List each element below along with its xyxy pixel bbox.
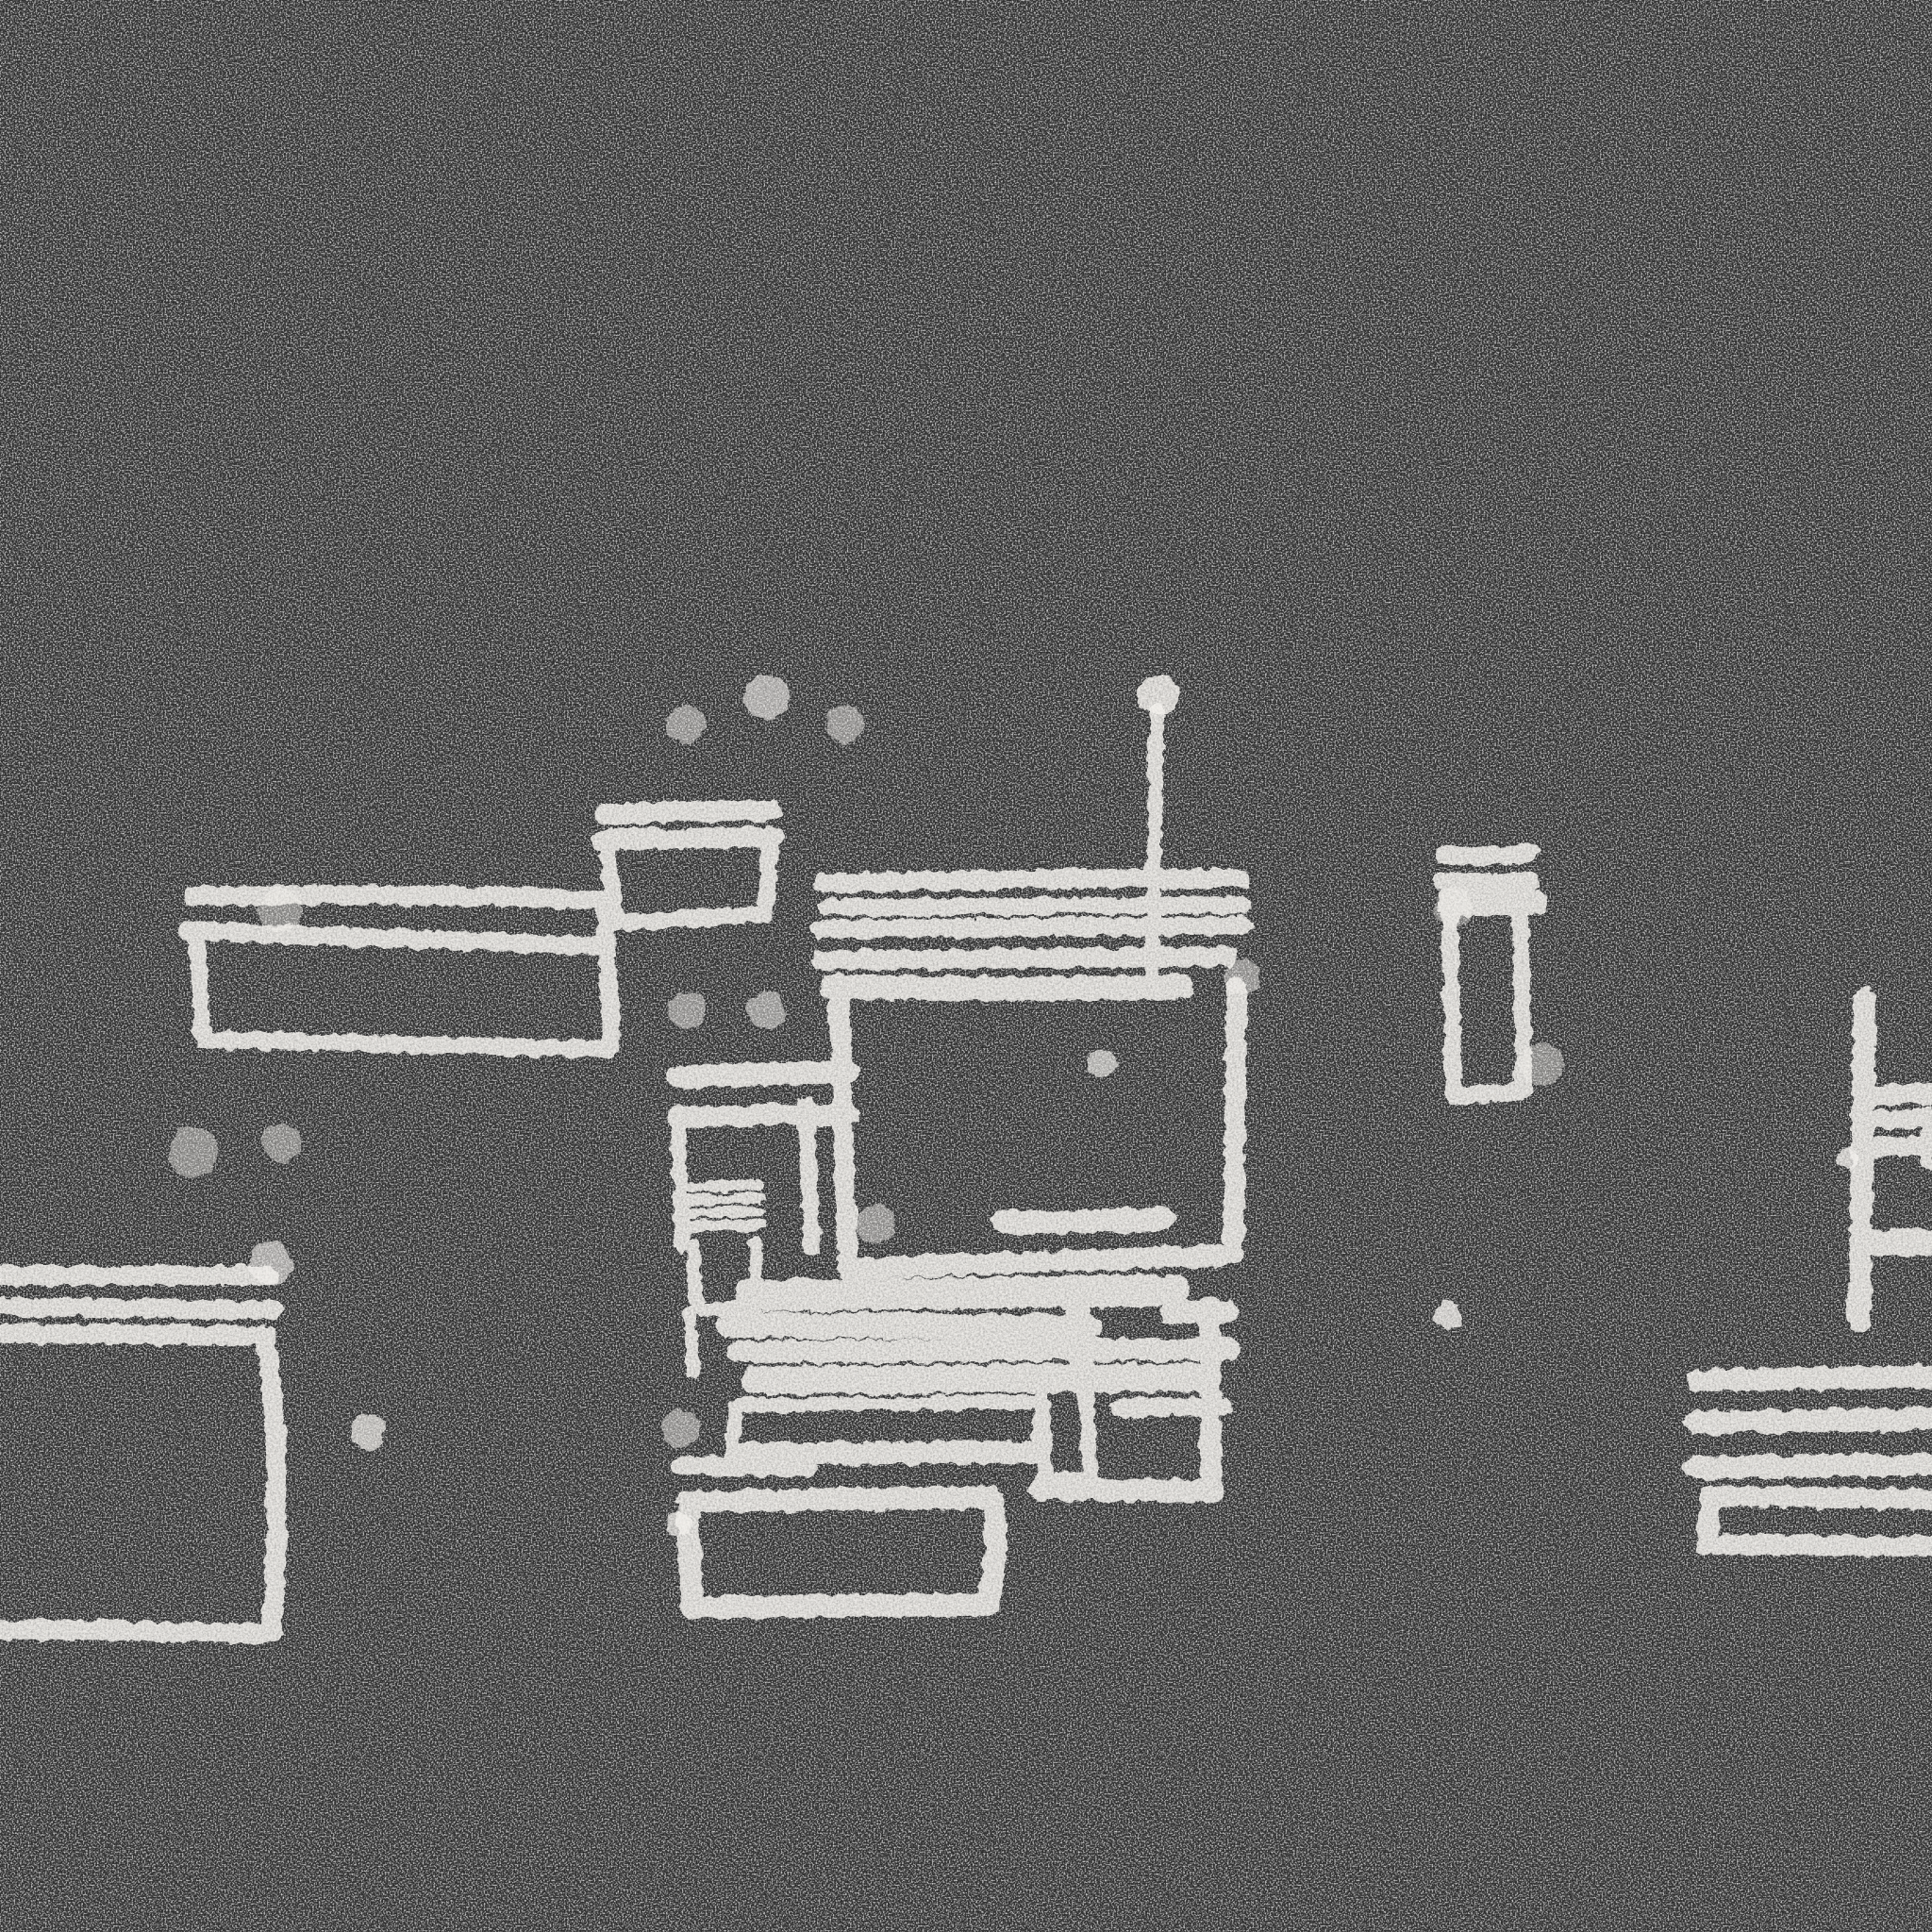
- chalk-line-stack: [686, 1185, 759, 1187]
- sketch-canvas: [0, 0, 1932, 1932]
- chalk-dot: [668, 991, 706, 1029]
- chalk-dot: [744, 675, 790, 720]
- chalk-line-comb: [1859, 999, 1865, 1322]
- chalk-dot: [1520, 1042, 1563, 1086]
- chalk-line-jar: [602, 837, 773, 840]
- chalk-line-mass: [729, 1324, 1088, 1327]
- chalk-dot: [1837, 1148, 1857, 1169]
- chalk-dot: [662, 1409, 700, 1447]
- chalk-line-book: [193, 895, 611, 900]
- chalk-sketch: [0, 0, 1932, 1932]
- chalk-line-stack: [687, 1224, 761, 1226]
- chalk-line-stack: [690, 1311, 693, 1373]
- chalk-dot: [1434, 1302, 1462, 1330]
- chalk-line-hook: [1041, 1489, 1208, 1491]
- chalk-dot: [168, 1126, 219, 1177]
- chalk-dot: [856, 1204, 895, 1243]
- chalk-line-stack: [806, 1106, 812, 1247]
- chalk-line-mass: [755, 1377, 1200, 1380]
- chalk-line-bottle: [1442, 881, 1532, 883]
- chalk-line-comb: [1695, 1464, 1932, 1468]
- chalk-line-mass: [739, 1349, 1229, 1352]
- chalk-dot: [826, 706, 864, 743]
- chalk-line-hook: [1078, 1308, 1082, 1375]
- chalk-dot: [1088, 1050, 1116, 1078]
- chalk-line-panel: [821, 925, 1241, 929]
- chalk-dot: [667, 706, 705, 743]
- chalk-line-mass: [750, 1291, 1174, 1295]
- chalk-dot: [748, 991, 786, 1029]
- chalk-line-bottle: [1444, 852, 1529, 857]
- chalk-line-jar: [605, 811, 773, 816]
- chalk-line-panel: [823, 878, 1241, 883]
- chalk-line-stack: [687, 1211, 760, 1213]
- chalk-dot: [666, 1512, 691, 1537]
- chalk-line-comb: [1698, 1376, 1932, 1380]
- chalk-line-bars: [681, 1465, 808, 1468]
- chalk-line-stack: [686, 1198, 760, 1200]
- chalk-line-panel: [1003, 1218, 1165, 1223]
- chalk-dot: [249, 1241, 292, 1285]
- chalk-dot: [1433, 889, 1473, 928]
- chalk-dot: [262, 1124, 300, 1162]
- chalk-line-tray: [0, 1307, 275, 1310]
- chalk-line-panel: [822, 957, 1226, 960]
- chalk-dot: [350, 1414, 386, 1450]
- chalk-dot: [1224, 959, 1259, 995]
- chalk-line-comb: [1878, 1092, 1932, 1095]
- chalk-line-panel: [826, 905, 1242, 908]
- chalk-line-comb: [1696, 1419, 1932, 1423]
- chalk-line-panel: [832, 987, 1181, 989]
- chalk-line-hook: [1209, 1307, 1211, 1493]
- chalk-line-stack: [676, 1114, 850, 1117]
- chalk-dot: [258, 889, 302, 932]
- chalk-line-comb: [1873, 1241, 1932, 1243]
- chalk-dot: [1138, 675, 1179, 716]
- chalk-line-stack: [678, 1121, 682, 1245]
- chalk-line-stack: [678, 1072, 848, 1076]
